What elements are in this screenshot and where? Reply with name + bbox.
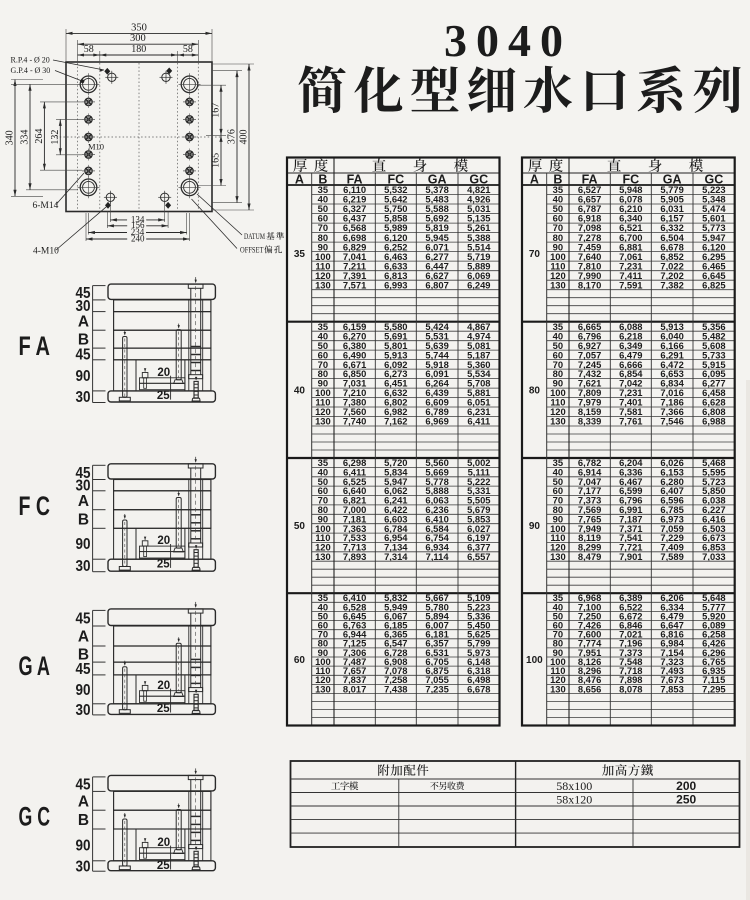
svg-text:7,591: 7,591 (619, 279, 642, 290)
svg-text:180: 180 (131, 44, 146, 55)
svg-text:A: A (78, 313, 89, 330)
svg-text:58: 58 (84, 44, 94, 55)
svg-text:A: A (78, 793, 89, 810)
svg-text:7,314: 7,314 (384, 551, 408, 562)
svg-text:6,557: 6,557 (467, 551, 490, 562)
svg-text:35: 35 (294, 249, 306, 260)
svg-text:400: 400 (239, 130, 250, 145)
svg-text:165: 165 (211, 153, 222, 168)
svg-text:6,825: 6,825 (702, 279, 725, 290)
svg-text:-: - (30, 66, 33, 75)
svg-text:7,295: 7,295 (702, 683, 725, 694)
svg-text:6-M14: 6-M14 (33, 201, 59, 211)
svg-text:70: 70 (529, 249, 541, 260)
svg-text:6,249: 6,249 (467, 279, 490, 290)
svg-text:30: 30 (76, 389, 91, 406)
svg-text:B: B (78, 812, 89, 829)
svg-text:6,678: 6,678 (467, 683, 490, 694)
svg-text:30: 30 (76, 859, 91, 876)
svg-text:F A: F A (19, 331, 51, 361)
svg-text:7,761: 7,761 (619, 416, 642, 427)
svg-text:350: 350 (131, 22, 147, 33)
svg-text:130: 130 (550, 416, 566, 427)
svg-text:7,546: 7,546 (660, 416, 683, 427)
svg-text:7,571: 7,571 (343, 279, 366, 290)
svg-text:376: 376 (227, 129, 238, 144)
svg-text:30: 30 (76, 558, 91, 575)
svg-text:8,078: 8,078 (619, 683, 642, 694)
svg-text:90: 90 (76, 837, 91, 854)
svg-text:G A: G A (19, 651, 51, 681)
svg-text:240: 240 (131, 233, 145, 243)
svg-text:8,339: 8,339 (578, 416, 601, 427)
svg-text:20: 20 (157, 680, 170, 692)
svg-text:8,479: 8,479 (578, 551, 601, 562)
svg-text:25: 25 (157, 703, 170, 715)
svg-text:20: 20 (157, 535, 170, 547)
svg-text:7,740: 7,740 (343, 416, 366, 427)
svg-text:25: 25 (157, 558, 170, 570)
svg-text:DATUM: DATUM (244, 232, 265, 241)
svg-text:A: A (78, 629, 89, 646)
svg-text:F C: F C (19, 491, 51, 521)
svg-text:M10: M10 (88, 142, 104, 152)
svg-text:334: 334 (20, 130, 31, 145)
svg-text:25: 25 (157, 860, 170, 872)
svg-text:8,656: 8,656 (578, 683, 601, 694)
svg-text:7,033: 7,033 (702, 551, 725, 562)
svg-text:90: 90 (76, 368, 91, 385)
svg-text:A: A (78, 493, 89, 510)
svg-text:45: 45 (76, 777, 91, 794)
svg-text:45: 45 (76, 661, 91, 678)
svg-text:100: 100 (526, 655, 543, 666)
svg-text:7,438: 7,438 (384, 683, 407, 694)
svg-text:130: 130 (550, 279, 566, 290)
svg-text:8,170: 8,170 (578, 279, 601, 290)
svg-text:340: 340 (5, 130, 16, 145)
svg-text:7,853: 7,853 (660, 683, 683, 694)
svg-text:6,988: 6,988 (702, 416, 725, 427)
svg-text:R.P.4: R.P.4 (11, 56, 28, 65)
svg-text:90: 90 (76, 536, 91, 553)
svg-text:6,969: 6,969 (425, 416, 448, 427)
svg-text:7,382: 7,382 (660, 279, 683, 290)
svg-text:30: 30 (76, 702, 91, 719)
svg-text:7,589: 7,589 (660, 551, 683, 562)
svg-text:200: 200 (676, 779, 696, 793)
svg-text:58: 58 (183, 44, 193, 55)
svg-text:58x120: 58x120 (556, 793, 592, 807)
svg-text:7,235: 7,235 (425, 683, 448, 694)
svg-text:130: 130 (550, 551, 566, 562)
svg-text:G C: G C (19, 802, 51, 832)
svg-text:130: 130 (315, 279, 331, 290)
svg-text:OFFSET: OFFSET (240, 246, 264, 255)
svg-text:90: 90 (76, 682, 91, 699)
svg-text:-: - (30, 56, 33, 65)
svg-text:7,114: 7,114 (426, 551, 450, 562)
svg-text:264: 264 (34, 129, 45, 144)
svg-text:25: 25 (157, 390, 170, 402)
svg-text:130: 130 (315, 551, 331, 562)
svg-text:60: 60 (294, 655, 306, 666)
svg-text:7,893: 7,893 (343, 551, 366, 562)
svg-text:20: 20 (157, 367, 170, 379)
svg-text:40: 40 (294, 386, 306, 397)
svg-text:45: 45 (76, 347, 91, 364)
svg-text:50: 50 (294, 521, 306, 532)
svg-text:6,807: 6,807 (425, 279, 448, 290)
svg-text:130: 130 (550, 683, 566, 694)
svg-text:8,017: 8,017 (343, 683, 366, 694)
svg-text:G.P.4: G.P.4 (11, 66, 28, 75)
svg-text:4-M10: 4-M10 (33, 247, 59, 257)
svg-text:Ø 30: Ø 30 (35, 66, 51, 75)
svg-text:7,162: 7,162 (384, 416, 407, 427)
svg-text:3040: 3040 (444, 15, 572, 66)
svg-text:6,993: 6,993 (384, 279, 407, 290)
svg-text:130: 130 (315, 416, 331, 427)
svg-text:167: 167 (211, 103, 222, 118)
svg-text:132: 132 (50, 130, 61, 145)
svg-text:300: 300 (130, 33, 146, 44)
svg-text:130: 130 (315, 683, 331, 694)
svg-text:90: 90 (529, 521, 541, 532)
svg-text:250: 250 (676, 793, 696, 807)
svg-text:58x100: 58x100 (556, 779, 592, 793)
svg-text:45: 45 (76, 611, 91, 628)
svg-text:80: 80 (529, 386, 541, 397)
svg-text:B: B (78, 512, 89, 529)
svg-text:7,901: 7,901 (619, 551, 642, 562)
svg-text:20: 20 (157, 837, 170, 849)
svg-text:Ø 20: Ø 20 (34, 56, 50, 65)
svg-text:6,411: 6,411 (467, 416, 490, 427)
